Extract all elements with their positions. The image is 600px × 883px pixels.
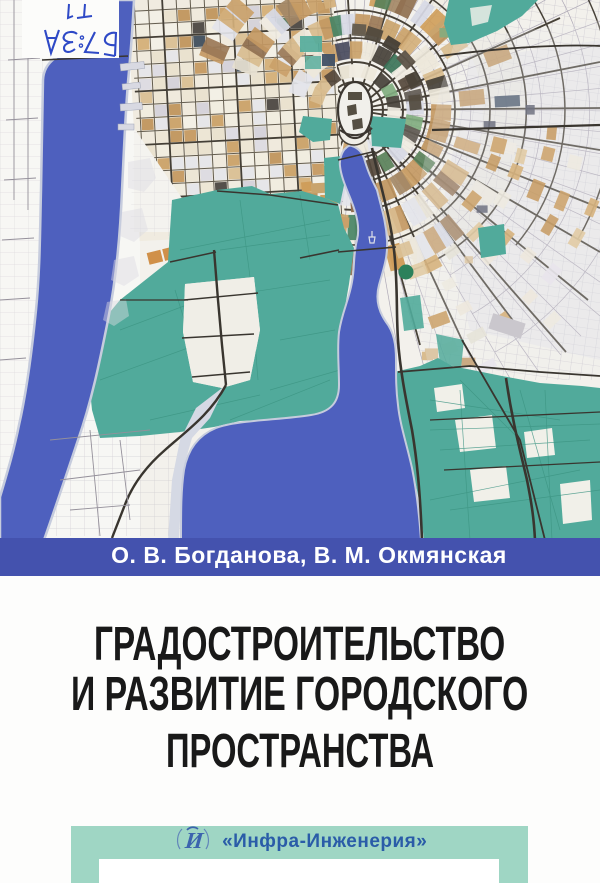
svg-text:И: И	[183, 827, 206, 853]
